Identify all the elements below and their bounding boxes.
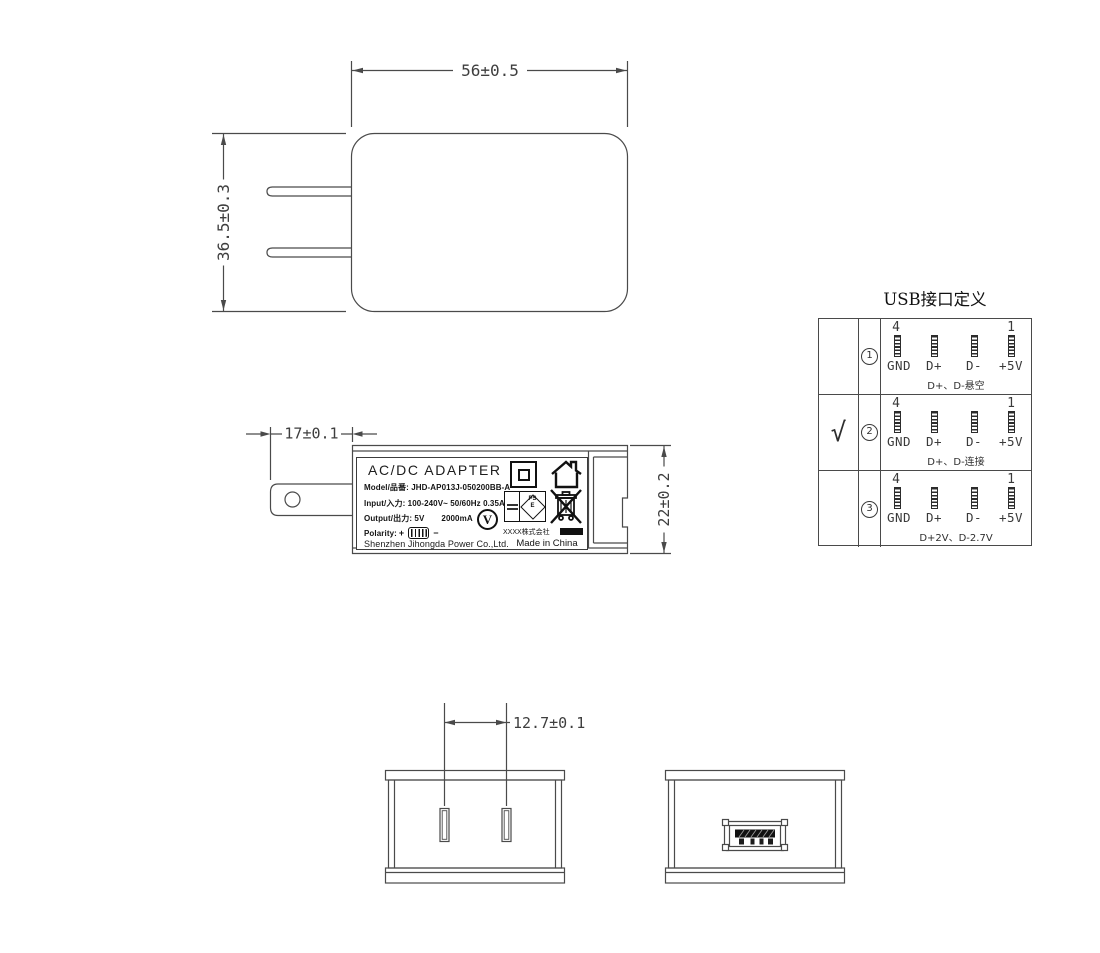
usb-connector-icon: [408, 527, 429, 539]
technical-drawing-canvas: 56±0.5 36.5±0.3: [0, 0, 1100, 953]
pin-label-gnd: GND: [883, 358, 915, 373]
label-model-line: Model/品番: JHD-AP013J-050200BB-A: [364, 482, 510, 493]
plug-face-body: [389, 780, 562, 868]
ac-prong-side: [271, 484, 353, 516]
usb-table-row-3: 3 4 1 GND D+ D- +5V D+2V、D-2.7V: [819, 471, 1031, 547]
pin-number-1: 1: [1005, 472, 1017, 487]
side-wall-lines: [675, 780, 836, 868]
pin-glyph: [1008, 411, 1015, 433]
side-wall-lines: [395, 780, 556, 868]
prong-length-dim-text: 17±0.1: [284, 425, 338, 443]
pin-glyph: [931, 411, 938, 433]
front-width-dim-text: 56±0.5: [461, 61, 519, 80]
company-jp-text: XXXX株式会社: [503, 527, 550, 537]
bottom-view-plug-face: 12.7±0.1: [386, 703, 586, 883]
dimension-pin-pitch: 12.7±0.1: [445, 703, 586, 806]
side-height-dim-text: 22±0.2: [655, 472, 673, 526]
pin-label-dminus: D-: [960, 358, 988, 373]
pin-label-dplus: D+: [920, 510, 948, 525]
usb-pinout-table: 1 4 1 GND D+ D- +5V D+、D-悬空 √ 2 4: [818, 318, 1032, 546]
usb-a-port: [723, 820, 788, 851]
prong-slot-right: [502, 809, 511, 842]
pin-label-5v: +5V: [994, 510, 1028, 525]
row-note: D+、D-悬空: [881, 377, 1031, 392]
pin-glyph: [1008, 487, 1015, 509]
pin-label-gnd: GND: [883, 434, 915, 449]
v-certification-icon: V: [477, 509, 498, 530]
polarity-text: Polarity:: [364, 529, 397, 538]
dimension-front-width: 56±0.5: [352, 61, 628, 127]
bottom-cap: [666, 868, 845, 883]
row-index-cell: 2: [859, 395, 881, 470]
usb-face-body: [669, 780, 842, 868]
dimension-front-height: 36.5±0.3: [212, 134, 346, 312]
row-check-cell: [819, 319, 859, 394]
row-index-cell: 1: [859, 319, 881, 394]
pin-glyph: [894, 487, 901, 509]
row-pinout-cell: 4 1 GND D+ D- +5V D+2V、D-2.7V: [881, 471, 1031, 547]
pse-e-text: E: [520, 503, 545, 510]
row-pinout-cell: 4 1 GND D+ D- +5V D+、D-连接: [881, 395, 1031, 470]
pin-number-4: 4: [890, 396, 902, 411]
bottom-view-usb-face: [666, 771, 845, 884]
bottom-cap: [386, 868, 565, 883]
pin-glyph: [1008, 335, 1015, 357]
pin-label-dplus: D+: [920, 434, 948, 449]
usb-table-row-2: √ 2 4 1 GND D+ D- +5V D+、D-连接: [819, 395, 1031, 471]
pse-registration-text: [505, 492, 520, 521]
prong-slot-left: [440, 809, 449, 842]
pin-number-1: 1: [1005, 396, 1017, 411]
pin-label-gnd: GND: [883, 510, 915, 525]
output-current: 2000mA: [441, 514, 472, 523]
weee-bin-icon: [549, 487, 583, 527]
ac-prong-upper: [267, 187, 352, 196]
circled-number: 3: [861, 501, 878, 518]
black-bar: [560, 528, 583, 535]
pin-label-dminus: D-: [960, 510, 988, 525]
output-text: Output/出力: 5V: [364, 513, 424, 524]
pin-glyph: [894, 335, 901, 357]
label-company-line: Shenzhen Jihongda Power Co.,Ltd.: [364, 539, 509, 549]
indoor-use-icon: [548, 458, 585, 490]
circled-number: 2: [861, 424, 878, 441]
row-note: D+2V、D-2.7V: [881, 529, 1031, 544]
made-in-text: Made in China: [509, 538, 585, 549]
usb-table-row-1: 1 4 1 GND D+ D- +5V D+、D-悬空: [819, 319, 1031, 395]
pin-glyph: [931, 335, 938, 357]
pin-number-4: 4: [890, 472, 902, 487]
row-check-cell: [819, 471, 859, 547]
circled-number: 1: [861, 348, 878, 365]
pin-glyph: [971, 335, 978, 357]
pin-glyph: [931, 487, 938, 509]
pin-label-5v: +5V: [994, 434, 1028, 449]
pin-label-dplus: D+: [920, 358, 948, 373]
plus-sign: +: [399, 528, 404, 538]
dimension-side-height: 22±0.2: [630, 446, 673, 554]
pin-pitch-dim-text: 12.7±0.1: [513, 714, 585, 732]
row-note: D+、D-连接: [881, 453, 1031, 468]
class-ii-icon: [510, 461, 537, 488]
pin-number-1: 1: [1005, 320, 1017, 335]
usb-contacts: [739, 839, 773, 845]
prong-hole: [285, 492, 300, 507]
label-output-line: Output/出力: 5V 2000mA: [364, 513, 473, 524]
pse-mark-icon: PS E: [504, 491, 546, 522]
minus-sign: −: [433, 528, 438, 538]
row-index-cell: 3: [859, 471, 881, 547]
top-cap: [666, 771, 845, 781]
label-title: AC/DC ADAPTER: [368, 462, 502, 478]
row-pinout-cell: 4 1 GND D+ D- +5V D+、D-悬空: [881, 319, 1031, 394]
pin-label-dminus: D-: [960, 434, 988, 449]
pin-label-5v: +5V: [994, 358, 1028, 373]
front-height-dim-text: 36.5±0.3: [214, 184, 233, 261]
front-view: 56±0.5 36.5±0.3: [212, 61, 628, 312]
ac-prong-lower: [267, 248, 352, 257]
row-check-cell: √: [819, 395, 859, 470]
pin-glyph: [971, 487, 978, 509]
usb-table-title: USB接口定义: [845, 286, 1025, 310]
top-cap: [386, 771, 565, 781]
pin-number-4: 4: [890, 320, 902, 335]
adapter-body-front: [352, 134, 628, 312]
pin-glyph: [894, 411, 901, 433]
adapter-label: AC/DC ADAPTER Model/品番: JHD-AP013J-05020…: [356, 457, 588, 550]
label-input-line: Input/入力: 100-240V~ 50/60Hz 0.35A: [364, 498, 505, 509]
pin-glyph: [971, 411, 978, 433]
label-polarity-line: Polarity: + −: [364, 527, 439, 539]
